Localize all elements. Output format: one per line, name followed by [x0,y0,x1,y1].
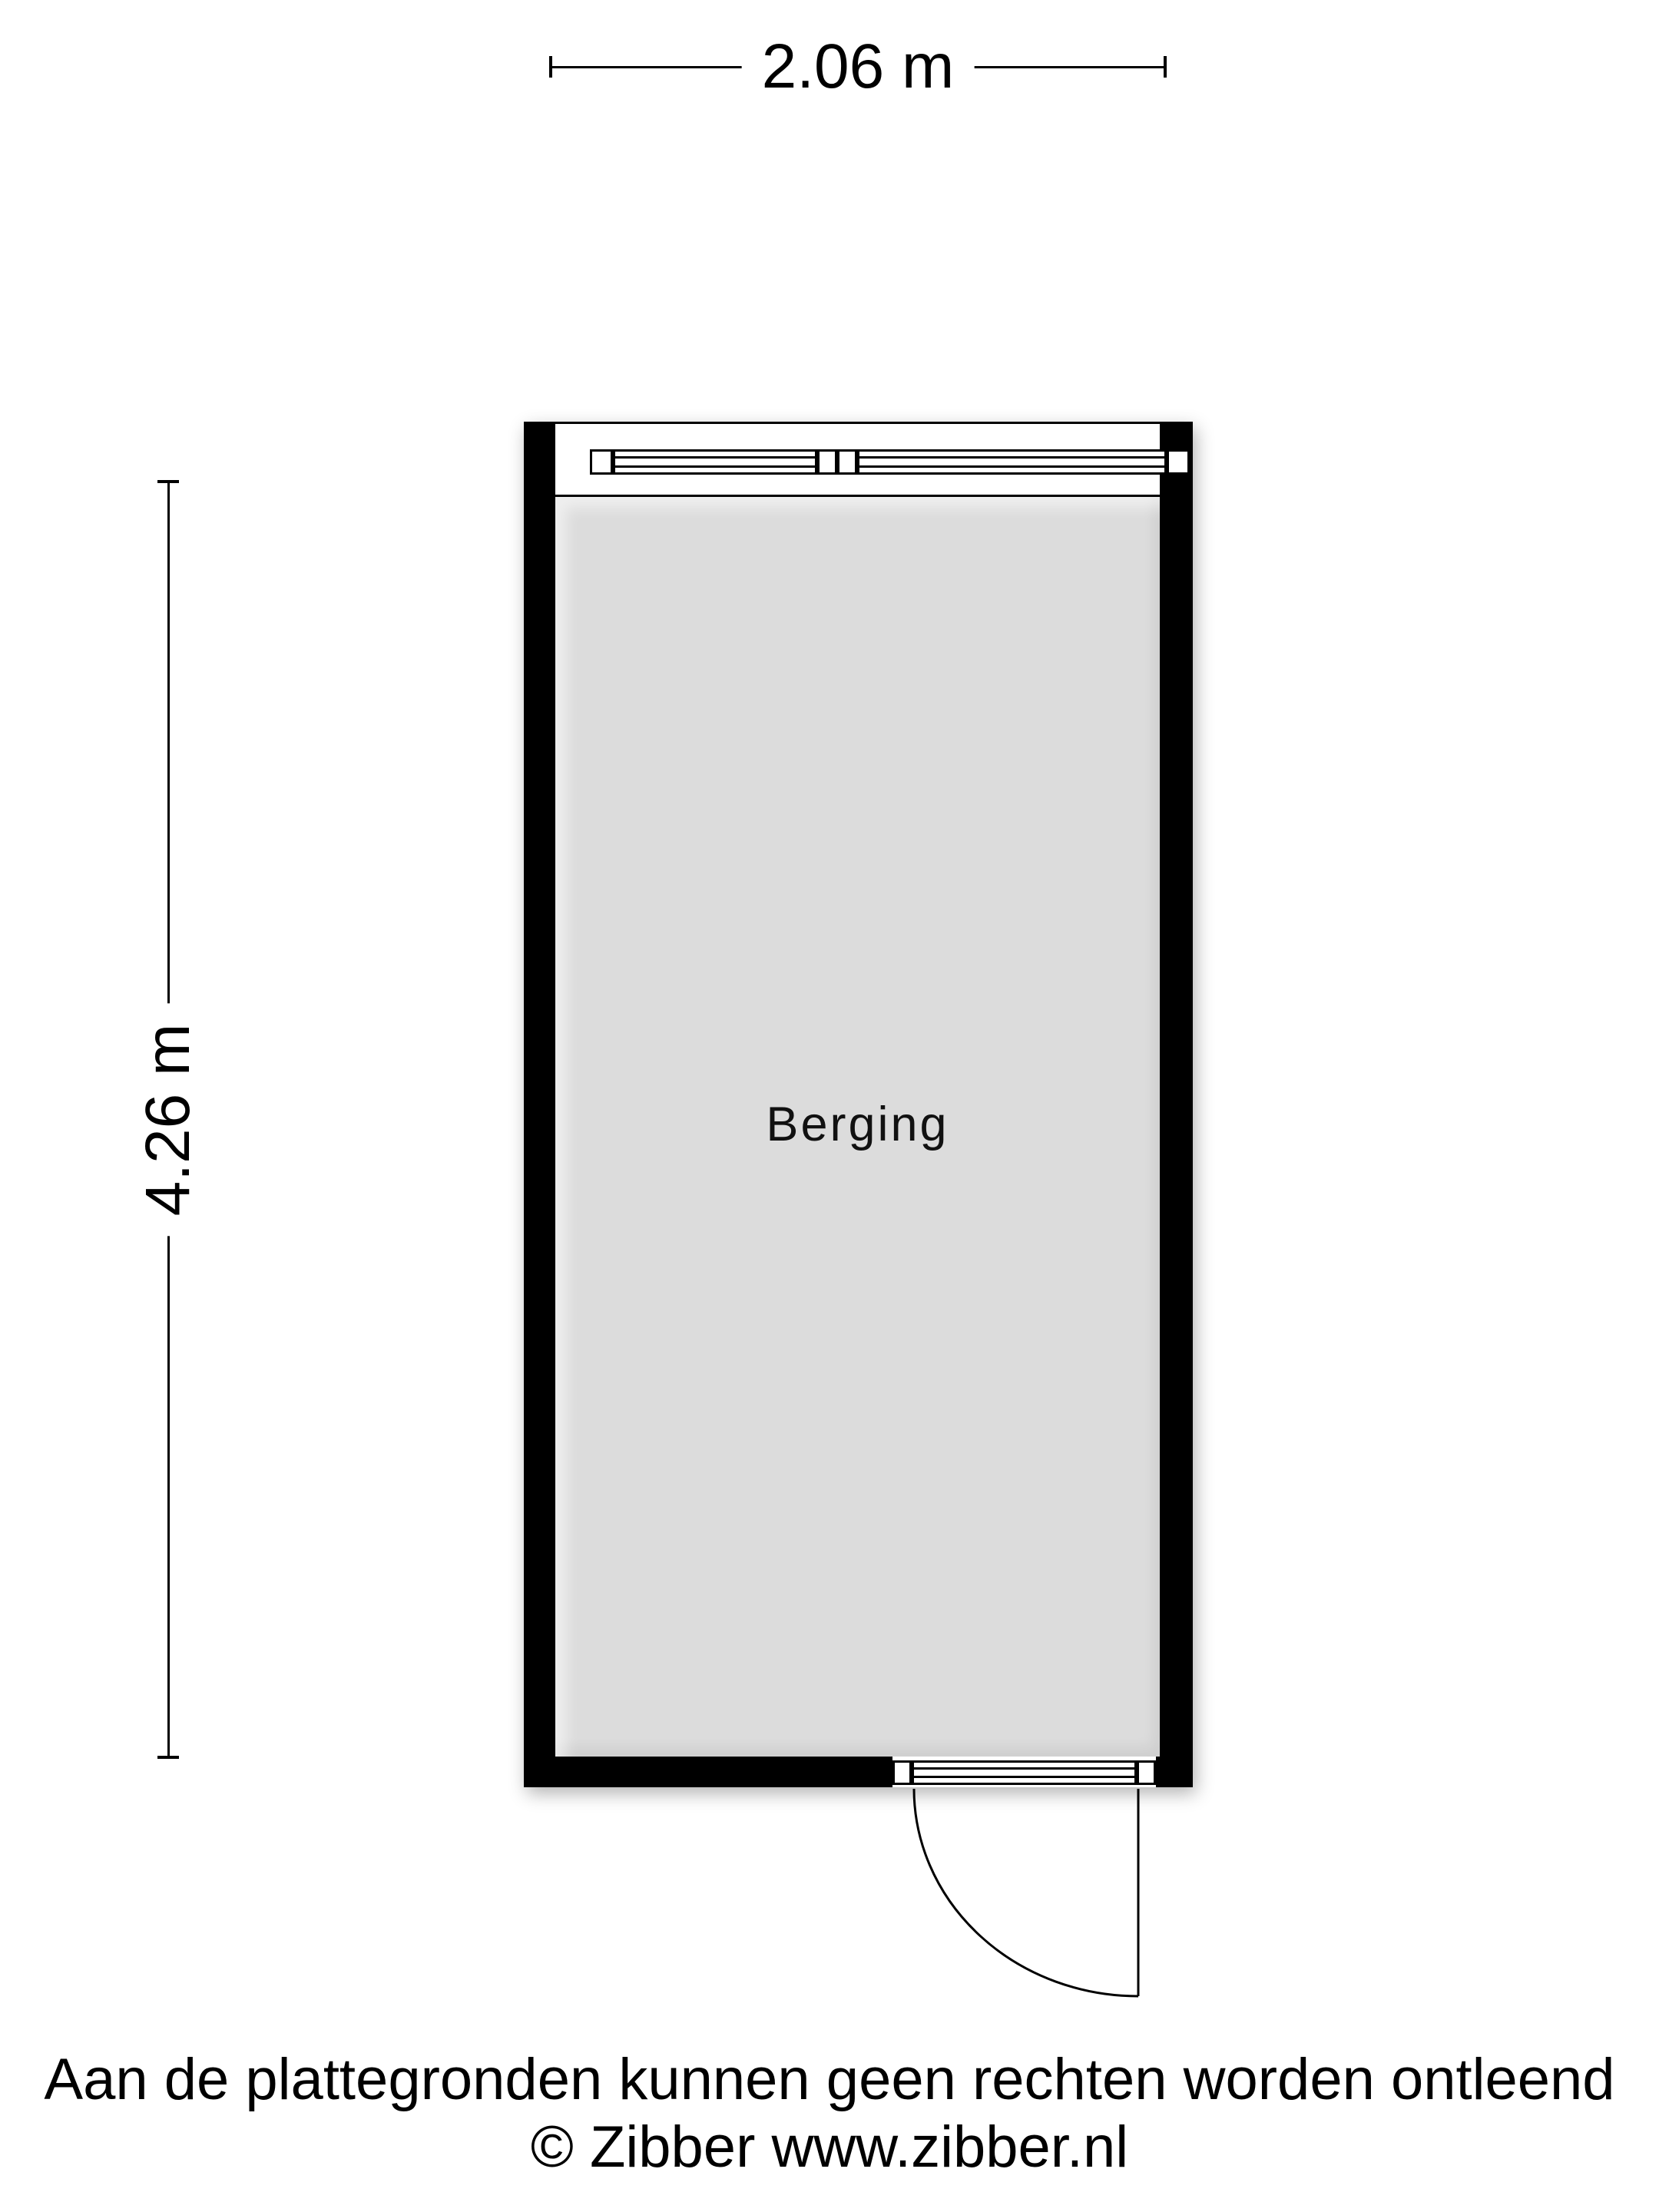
dimension-width: 2.06 m [551,56,1165,78]
window-symbol [590,449,1190,475]
wall-right [1160,422,1193,1787]
wall-top [555,422,1160,497]
door-threshold [912,1760,1137,1785]
floorplan-drawing: Berging [524,422,1193,1787]
wall-bottom-left [524,1757,892,1787]
dimension-height: 4.26 m [157,482,179,1757]
footer-copyright: © Zibber www.zibber.nl [0,2114,1659,2181]
door-frame-cap [1137,1760,1156,1785]
window-frame-cap [1167,449,1190,475]
window-glass-line [615,456,815,459]
dimension-tick [157,1756,179,1759]
window-frame-cap [590,449,613,475]
window-glass-line [859,465,1164,468]
door-sill [892,1760,1156,1785]
window-mullion [817,449,837,475]
wall-bottom-right [1156,1757,1193,1787]
dimension-height-label: 4.26 m [137,1003,200,1236]
dimension-tick [1164,56,1167,78]
door-swing-arc [914,1789,1138,1996]
room-berging: Berging [555,497,1160,1757]
floorplan-page: 2.06 m 4.26 m [0,0,1659,2212]
room-label: Berging [766,1097,949,1152]
window-glass-line [859,456,1164,459]
door-swing-symbol [911,1786,1140,1998]
door-threshold-line [914,1767,1134,1770]
window-glass-line [615,465,815,468]
footer-disclaimer: Aan de plattegronden kunnen geen rechten… [0,2046,1659,2114]
window-pane [857,449,1167,475]
dimension-width-label: 2.06 m [742,35,975,98]
door-frame-cap [892,1760,912,1785]
window-pane [613,449,817,475]
window-mullion [837,449,857,475]
footer: Aan de plattegronden kunnen geen rechten… [0,2046,1659,2181]
door-threshold-line [914,1776,1134,1778]
wall-left [524,422,555,1787]
